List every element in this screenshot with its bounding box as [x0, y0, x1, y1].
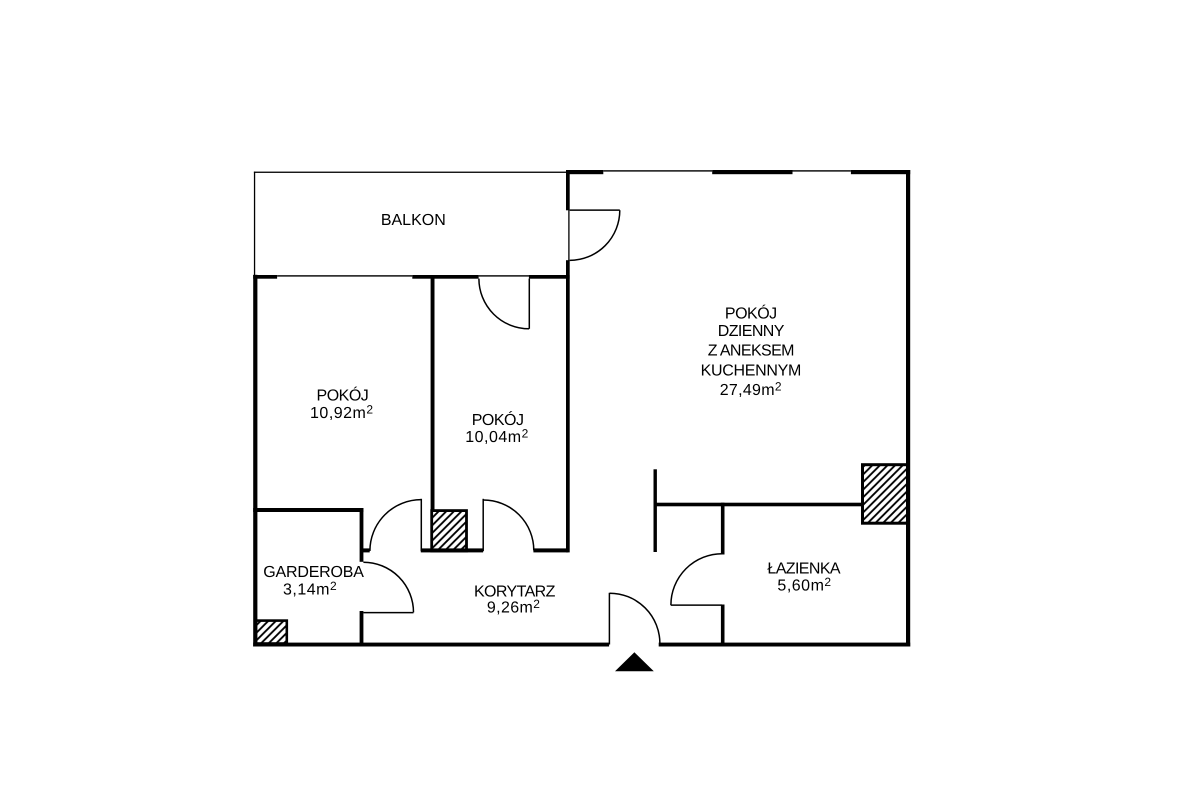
svg-text:3,14m2: 3,14m2: [283, 579, 337, 599]
svg-text:KORYTARZ: KORYTARZ: [474, 583, 556, 600]
svg-text:KUCHENNYM: KUCHENNYM: [701, 362, 801, 379]
svg-text:GARDEROBA: GARDEROBA: [263, 564, 364, 581]
svg-text:9,26m2: 9,26m2: [487, 597, 541, 617]
svg-text:POKÓJ: POKÓJ: [725, 304, 777, 322]
svg-text:Z ANEKSEM: Z ANEKSEM: [708, 343, 794, 360]
svg-text:POKÓJ: POKÓJ: [472, 411, 524, 429]
svg-text:10,04m2: 10,04m2: [465, 427, 529, 447]
svg-text:POKÓJ: POKÓJ: [317, 386, 369, 404]
svg-text:10,92m2: 10,92m2: [310, 402, 374, 422]
svg-text:5,60m2: 5,60m2: [777, 575, 831, 595]
svg-text:DZIENNY: DZIENNY: [718, 323, 785, 340]
svg-text:BALKON: BALKON: [381, 212, 446, 229]
svg-text:27,49m2: 27,49m2: [720, 380, 782, 400]
